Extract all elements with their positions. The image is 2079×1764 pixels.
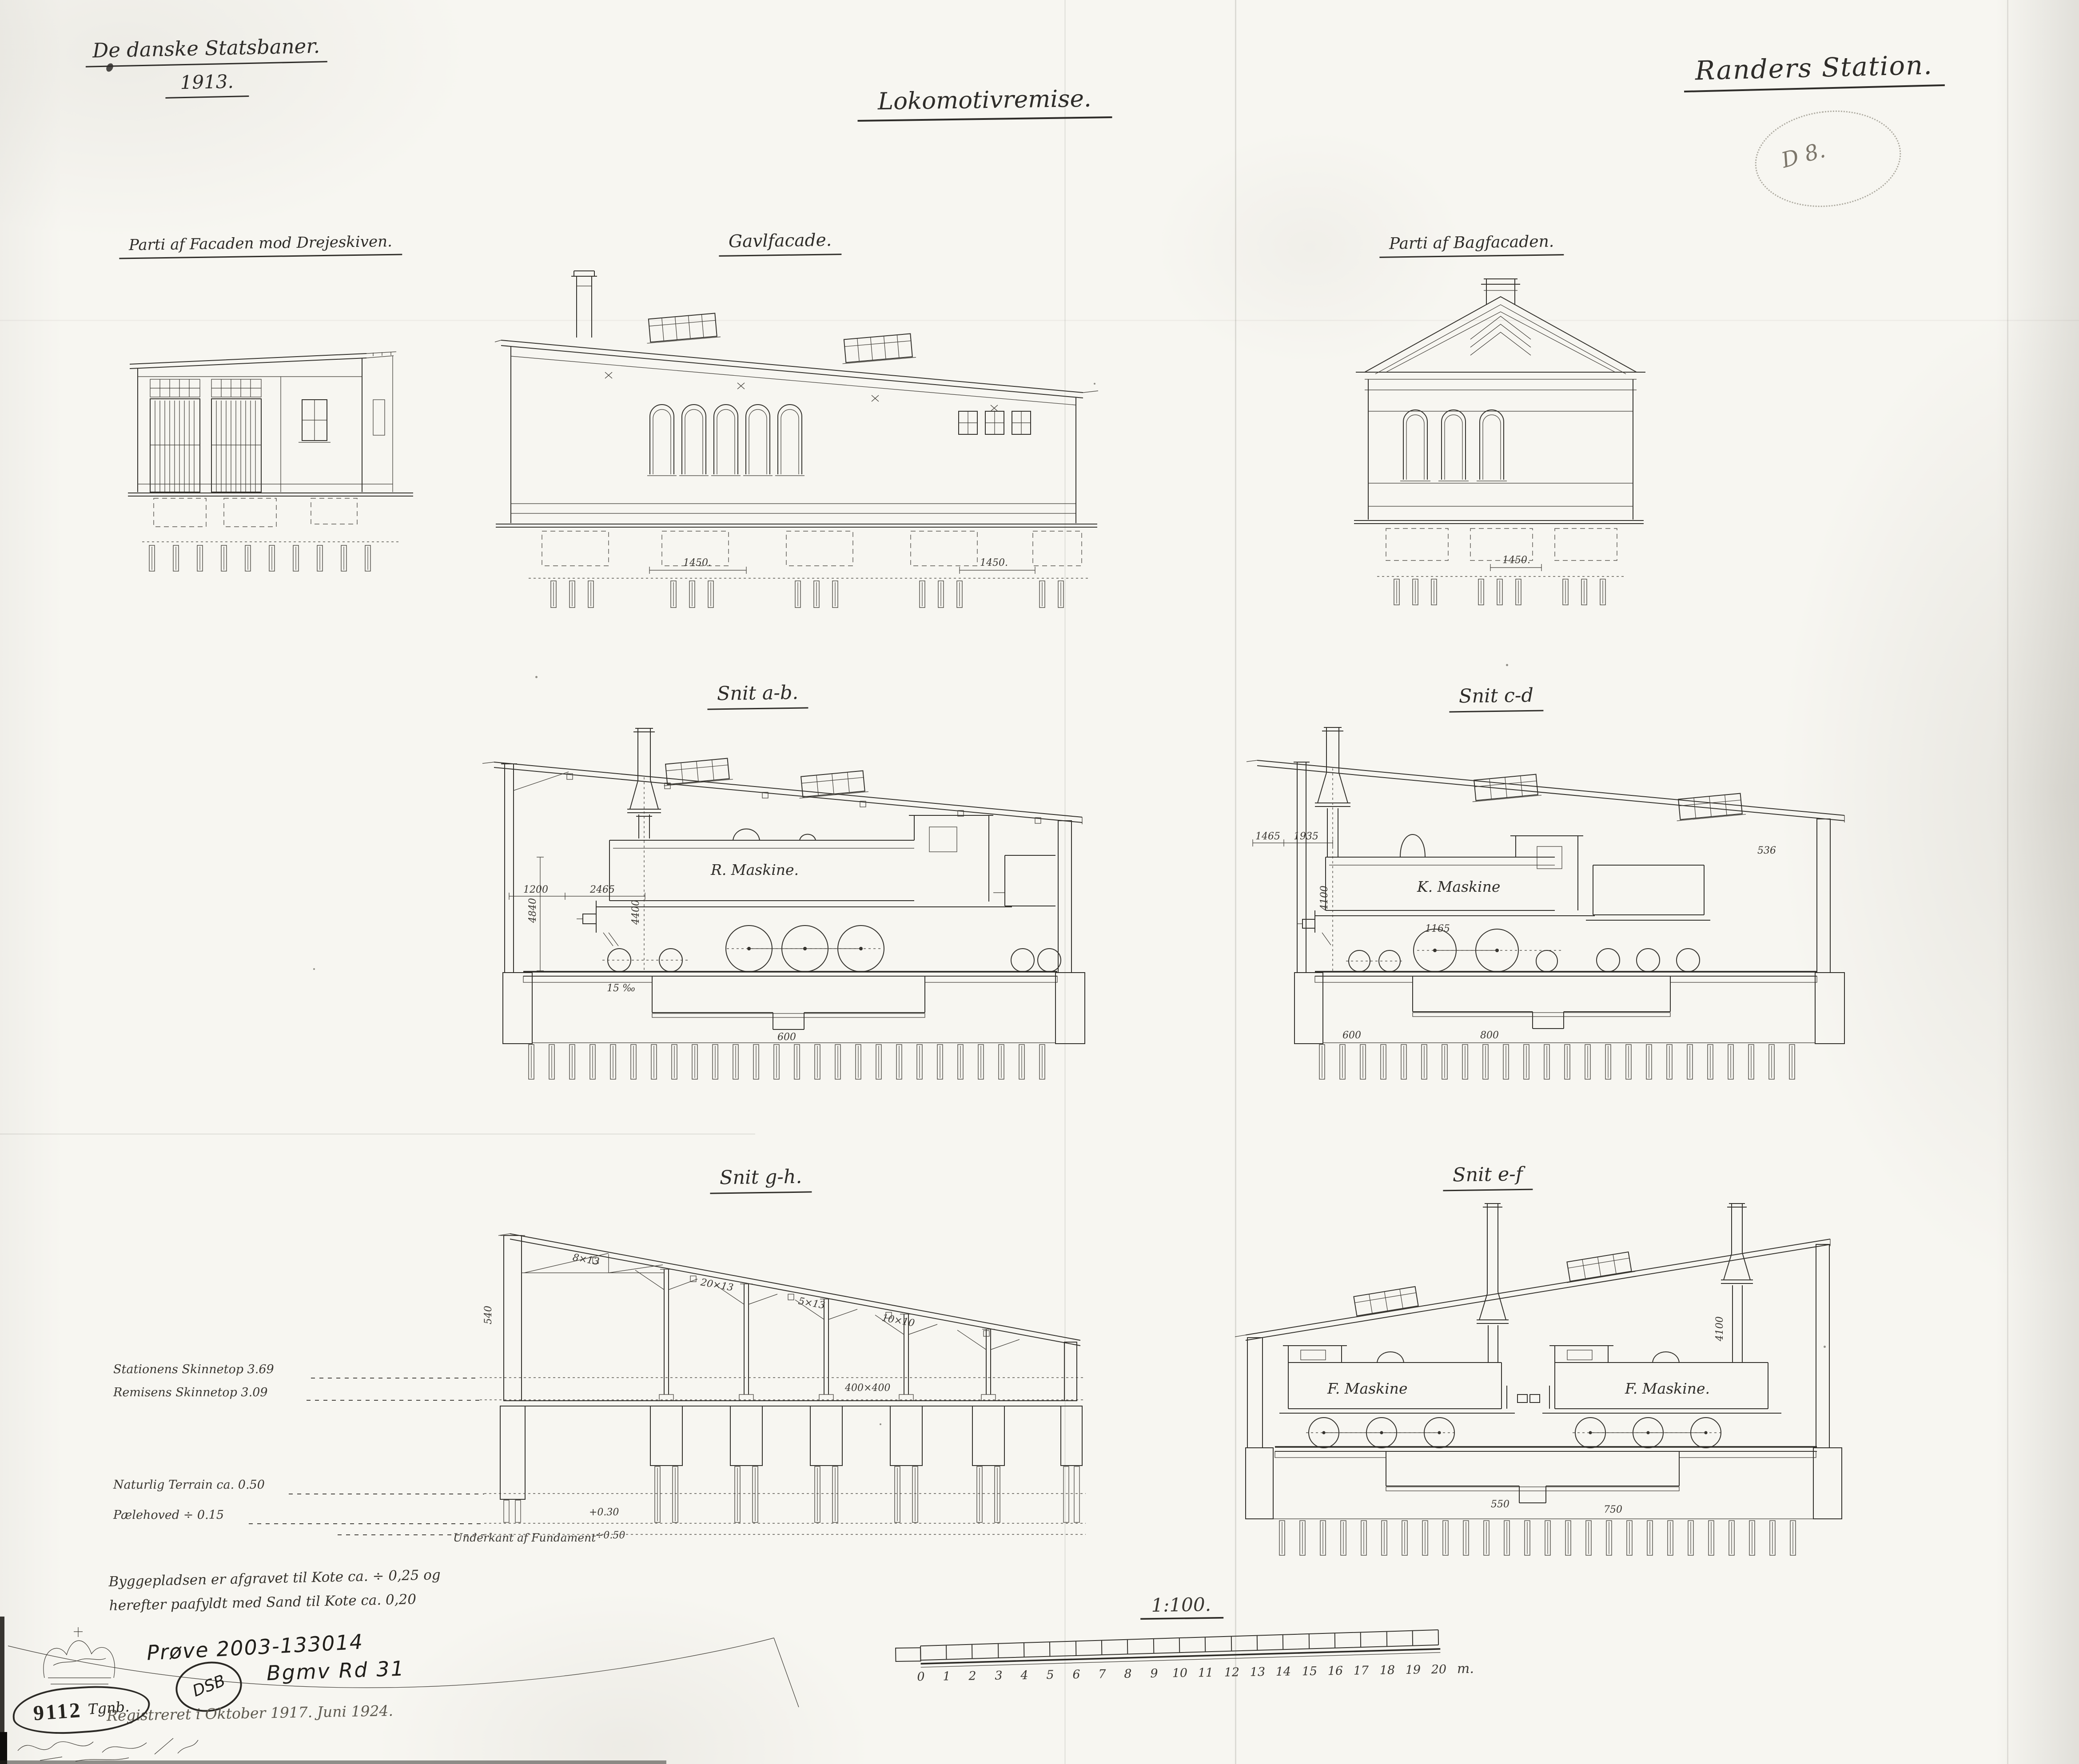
dsb-stamp-text: DSB xyxy=(190,1672,228,1700)
dim-text: 1450. xyxy=(1502,555,1530,566)
org-title-block: De danske Statsbaner. 1913. xyxy=(73,34,341,101)
scale-tick: 15 xyxy=(1302,1665,1318,1678)
footnote-line1: Byggepladsen er afgravet til Kote ca. ÷ … xyxy=(108,1567,441,1590)
dust-speck xyxy=(313,968,315,970)
dim-text: 4100 xyxy=(1319,886,1330,911)
dim-text: 1935 xyxy=(1294,831,1318,842)
dim-text: 550 xyxy=(1491,1499,1509,1510)
label-snit-cd: Snit c-d xyxy=(1449,684,1544,713)
dust-speck xyxy=(535,676,538,678)
label-snit-ef: Snit e-f xyxy=(1443,1163,1533,1192)
view-snit-ef-drawing: F. Maskine F. Maskine. 4100 750 550 xyxy=(1208,1199,1866,1568)
fold-crease xyxy=(0,1133,755,1135)
truss-dim-text: 20×13 xyxy=(699,1277,734,1294)
dim-text: 1165 xyxy=(1425,923,1450,934)
dim-text: 536 xyxy=(1757,845,1776,856)
scan-edge-artifact xyxy=(0,1760,666,1764)
scale-tick: 11 xyxy=(1198,1666,1214,1680)
fold-crease xyxy=(2007,0,2008,1764)
dim-text: 4100 xyxy=(1714,1316,1725,1342)
machine-label: K. Maskine xyxy=(1417,878,1500,895)
level-leader-line xyxy=(289,1494,484,1494)
truss-dim-text: 5×13 xyxy=(797,1296,826,1311)
station-title: Randers Station. xyxy=(1683,49,1945,92)
level-leader-line xyxy=(307,1400,480,1401)
level-pile-head: Pælehoved ÷ 0.15 xyxy=(113,1508,224,1522)
label-gavlfacade: Gavlfacade. xyxy=(719,230,842,257)
scale-tick: 19 xyxy=(1405,1663,1421,1677)
dim-text: 540 xyxy=(483,1306,494,1324)
drawing-title-block: Lokomotivremise. xyxy=(857,85,1112,122)
number-stamp-digits: 9112 xyxy=(32,1697,83,1725)
footnote-line2: herefter paafyldt med Sand til Kote ca. … xyxy=(109,1591,441,1614)
scale-tick: 1 xyxy=(943,1669,951,1683)
label-bagfacade: Parti af Bagfacaden. xyxy=(1379,232,1564,258)
scale-tick: 20 xyxy=(1430,1663,1446,1677)
scale-tick: 7 xyxy=(1098,1667,1106,1681)
dim-text: 600 xyxy=(1342,1030,1361,1041)
level-shed-rail: Remisens Skinnetop 3.09 xyxy=(113,1386,268,1399)
label-snit-ab: Snit a-b. xyxy=(707,681,808,710)
dim-text: 800 xyxy=(1480,1030,1499,1041)
dim-text: 1450. xyxy=(683,557,711,568)
inventory-number: Bgmv Rd 31 xyxy=(266,1657,405,1685)
number-stamp-label: Tgnb. xyxy=(88,1698,130,1717)
view-snit-gh-drawing: 540 8×13 20×13 5×13 10×10 400×400 +0.30 … xyxy=(462,1208,1111,1568)
scale-unit: m. xyxy=(1457,1661,1474,1677)
truss-dim-text: 10×10 xyxy=(881,1312,916,1329)
scale-tick: 12 xyxy=(1224,1665,1240,1679)
dim-text: 4840 xyxy=(527,898,538,923)
round-stamp: D 8. xyxy=(1749,103,1907,215)
level-terrain: Naturlig Terrain ca. 0.50 xyxy=(113,1478,265,1492)
dim-text: 1200 xyxy=(523,884,548,895)
org-title: De danske Statsbaner. xyxy=(85,34,327,67)
label-facade-drejeskive: Parti af Facaden mod Drejeskiven. xyxy=(119,233,402,259)
drawing-sheet: De danske Statsbaner. 1913. Lokomotivrem… xyxy=(0,0,2079,1764)
dim-text: 750 xyxy=(1604,1504,1622,1515)
dim-text: 1450. xyxy=(980,557,1008,568)
truss-dim-text: 8×13 xyxy=(572,1252,600,1267)
scale-title: 1:100. xyxy=(1151,1593,1211,1616)
level-foundation: Underkant af Fundament xyxy=(453,1531,596,1544)
dim-text: 2465 xyxy=(589,884,615,895)
scale-tick: 14 xyxy=(1276,1665,1291,1679)
scale-tick: 9 xyxy=(1150,1667,1158,1681)
view-bagfacade-drawing: 1450. xyxy=(1333,271,1661,617)
level-text: +0.30 xyxy=(589,1507,619,1518)
dim-text: 4400 xyxy=(630,900,641,925)
scale-tick: 5 xyxy=(1046,1668,1054,1682)
scale-tick: 2 xyxy=(968,1669,976,1683)
round-stamp-text: D 8. xyxy=(1779,138,1828,173)
scale-tick: 13 xyxy=(1250,1665,1266,1679)
scale-tick: 16 xyxy=(1328,1664,1343,1678)
level-leader-line xyxy=(249,1523,484,1524)
slope-text: 15 ‰ xyxy=(607,983,636,994)
station-title-block: Randers Station. xyxy=(1683,49,1945,92)
scale-tick: 8 xyxy=(1124,1667,1132,1681)
dust-speck xyxy=(1506,664,1508,666)
scan-edge-artifact xyxy=(0,1732,7,1764)
crown-stamp-icon xyxy=(27,1621,129,1692)
machine-label: F. Maskine xyxy=(1327,1380,1407,1397)
level-text: ÷0.50 xyxy=(595,1530,625,1541)
view-snit-cd-drawing: K. Maskine 1465 1935 4100 536 1165 600 8… xyxy=(1226,724,1861,1097)
scale-tick: 6 xyxy=(1072,1668,1080,1681)
view-snit-ab-drawing: R. Maskine. 1200 2465 4400 4840 600 15 ‰ xyxy=(462,724,1111,1097)
scribble-marks xyxy=(13,1731,204,1764)
scale-tick: 18 xyxy=(1380,1663,1395,1677)
view-facade-drejeskive-drawing xyxy=(124,333,426,582)
level-leader-line xyxy=(311,1378,480,1379)
scale-bar: 1:100. 0 1 2 3 4 5 6 7 8 9 10 11 12 13 1… xyxy=(880,1590,1484,1679)
machine-label: R. Maskine. xyxy=(710,861,799,878)
machine-label: F. Maskine. xyxy=(1625,1380,1710,1397)
view-gavlfacade-drawing: 1450. 1450. xyxy=(475,262,1111,617)
level-station-rail: Stationens Skinnetop 3.69 xyxy=(113,1363,274,1376)
level-leader-line xyxy=(338,1534,484,1535)
scale-tick: 3 xyxy=(995,1669,1003,1683)
footnote-block: Byggepladsen er afgravet til Kote ca. ÷ … xyxy=(108,1567,441,1614)
truss-dim-text: 400×400 xyxy=(844,1383,890,1394)
scale-tick: 10 xyxy=(1172,1666,1188,1680)
scale-tick: 0 xyxy=(917,1670,925,1684)
label-snit-gh: Snit g-h. xyxy=(710,1165,812,1194)
drawing-title: Lokomotivremise. xyxy=(857,85,1112,122)
dim-text: 600 xyxy=(777,1032,796,1043)
dim-text: 1465 xyxy=(1255,831,1280,842)
scale-tick: 17 xyxy=(1354,1664,1370,1677)
scale-tick: 4 xyxy=(1020,1669,1028,1682)
org-year: 1913. xyxy=(165,70,249,99)
